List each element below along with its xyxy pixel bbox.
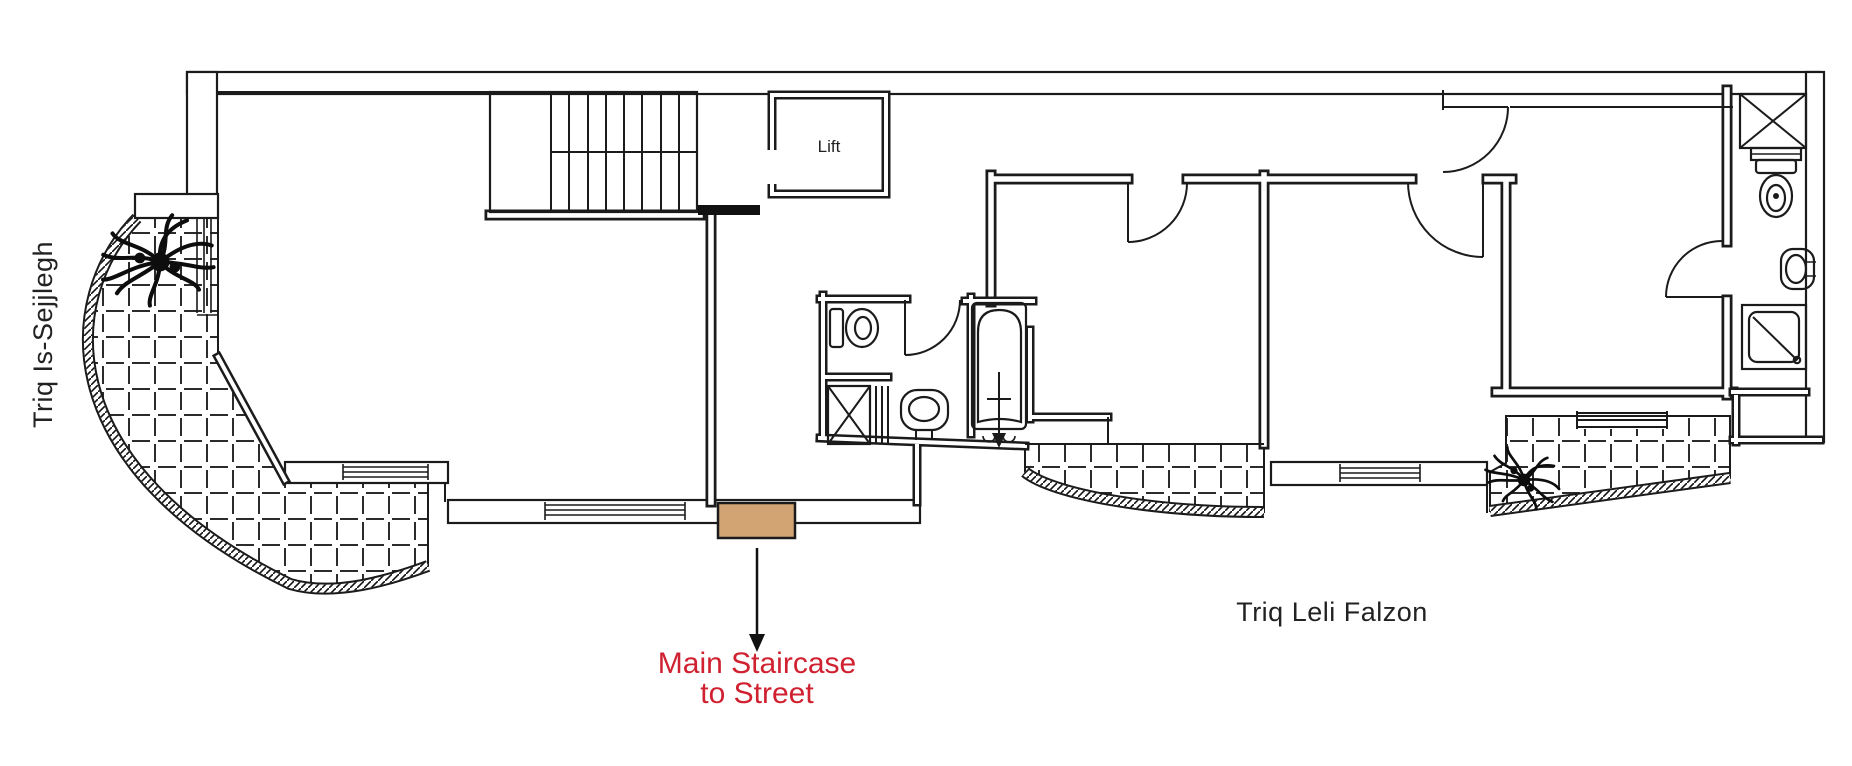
bedroom2-door [1408, 182, 1483, 257]
right-balcony [1490, 410, 1730, 511]
bottom-wall-band-b [448, 500, 920, 523]
lift-door-gap [765, 150, 777, 184]
left-wing-wall [135, 194, 218, 218]
annotation-line1: Main Staircase [658, 647, 856, 680]
toilet-icon [1756, 160, 1796, 217]
bedroom3-door [1443, 107, 1508, 172]
internal-staircase [217, 92, 760, 215]
street-label-bottom: Triq Leli Falzon [1236, 597, 1428, 627]
doors [905, 107, 1722, 355]
toilet-icon [830, 309, 878, 347]
floor-plan-page: Lift Main Staircase to Street Triq Is-Se… [0, 0, 1852, 766]
right-bathroom-fixtures [1740, 94, 1816, 369]
center-balcony [1025, 444, 1264, 512]
right-bathroom-door [1666, 241, 1722, 297]
floor-plan-drawing: Lift Main Staircase to Street Triq Is-Se… [0, 0, 1852, 766]
sink-icon [901, 390, 948, 440]
bedroom1-door [1128, 183, 1187, 242]
annotation-line2: to Street [700, 677, 814, 710]
main-staircase-marker [718, 503, 795, 538]
shower-tray-icon [1742, 305, 1806, 369]
door-threshold [698, 205, 760, 215]
mid-bathroom-door [905, 300, 960, 355]
main-staircase-annotation: Main Staircase to Street [658, 503, 856, 710]
street-label-left: Triq Is-Sejjlegh [28, 241, 58, 428]
lift-label: Lift [818, 137, 841, 156]
